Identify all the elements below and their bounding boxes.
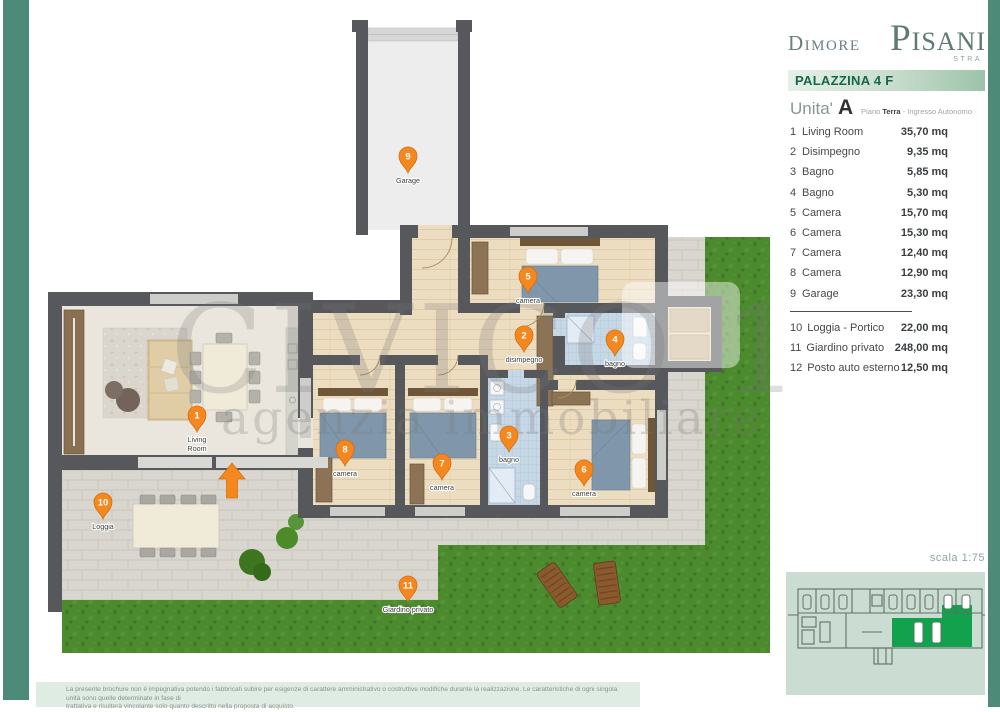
svg-text:9: 9 [405, 152, 410, 163]
right-accent-bar [988, 0, 1000, 707]
svg-text:agenzia immobiliare: agenzia immobiliare [221, 391, 763, 446]
table-row: 10 Loggia - Portico 22,00 mq [790, 318, 948, 338]
svg-text:bagno: bagno [499, 455, 519, 464]
svg-text:6: 6 [581, 465, 586, 476]
footer-disclaimer: La presente brochure non è impegnativa p… [36, 682, 640, 707]
svg-text:8: 8 [342, 445, 347, 456]
table-row: 1 Living Room 35,70 mq [790, 122, 948, 142]
svg-text:Loggia: Loggia [92, 522, 114, 531]
table-row: 2 Disimpegno 9,35 mq [790, 142, 948, 162]
table-row: 5 Camera 15,70 mq [790, 203, 948, 223]
scale-note: scala 1:75 [788, 552, 985, 564]
svg-text:3: 3 [506, 431, 511, 442]
unit-letter: A [838, 96, 853, 120]
table-row: 7 Camera 12,40 mq [790, 243, 948, 263]
svg-text:Giardino privato: Giardino privato [383, 605, 434, 614]
table-row: 6 Camera 15,30 mq [790, 223, 948, 243]
svg-text:10: 10 [98, 498, 109, 509]
unit-header: Unita' A Piano Terra - Ingresso Autonomo [790, 96, 985, 120]
svg-text:camera: camera [572, 489, 596, 498]
svg-text:4: 4 [612, 335, 618, 346]
svg-text:2: 2 [521, 331, 526, 342]
table-row: 11 Giardino privato 248,00 mq [790, 338, 948, 358]
mini-site-plan [786, 572, 985, 695]
unit-label: Unita' [790, 99, 833, 119]
watermark: CIVICO 1 agenzia immobiliare [170, 279, 806, 446]
building-title-bar: PALAZZINA 4 F [788, 70, 985, 91]
svg-text:1: 1 [194, 411, 200, 422]
brand-subtitle: STRA [788, 56, 982, 63]
table-row: 9 Garage 23,30 mq [790, 284, 948, 304]
table-divider [790, 311, 912, 312]
svg-text:5: 5 [525, 272, 531, 283]
svg-text:disimpegno: disimpegno [506, 355, 543, 364]
svg-text:7: 7 [439, 459, 444, 470]
room-garage [352, 20, 472, 235]
brand-name-small: Dimore [788, 31, 861, 56]
disclaimer-line-1: La presente brochure non è impegnativa p… [66, 686, 632, 703]
svg-text:Living: Living [188, 435, 207, 444]
svg-text:bagno: bagno [605, 359, 625, 368]
unit-floor-info: Piano Terra - Ingresso Autonomo [861, 107, 972, 116]
table-row: 4 Bagno 5,30 mq [790, 183, 948, 203]
mini-site-plan-drawing [786, 572, 985, 695]
left-accent-bar [3, 0, 29, 700]
table-row: 3 Bagno 5,85 mq [790, 162, 948, 182]
brand-logo: Dimore Pisani STRA [788, 24, 986, 63]
svg-text:camera: camera [516, 296, 540, 305]
disclaimer-line-2: trattativa e risulterà vincolante solo q… [66, 703, 632, 712]
boundary-wall [48, 292, 62, 612]
table-row: 12 Posto auto esterno 12,50 mq [790, 358, 948, 378]
building-title: PALAZZINA 4 F [795, 73, 894, 88]
svg-text:Garage: Garage [396, 176, 420, 185]
svg-text:11: 11 [403, 581, 414, 592]
svg-text:camera: camera [333, 469, 357, 478]
svg-text:Room: Room [187, 444, 206, 453]
brand-name-large: Pisani [890, 24, 986, 54]
rooms-table: 1 Living Room 35,70 mq 2 Disimpegno 9,35… [790, 122, 948, 378]
svg-text:camera: camera [430, 483, 454, 492]
table-row: 8 Camera 12,90 mq [790, 263, 948, 283]
